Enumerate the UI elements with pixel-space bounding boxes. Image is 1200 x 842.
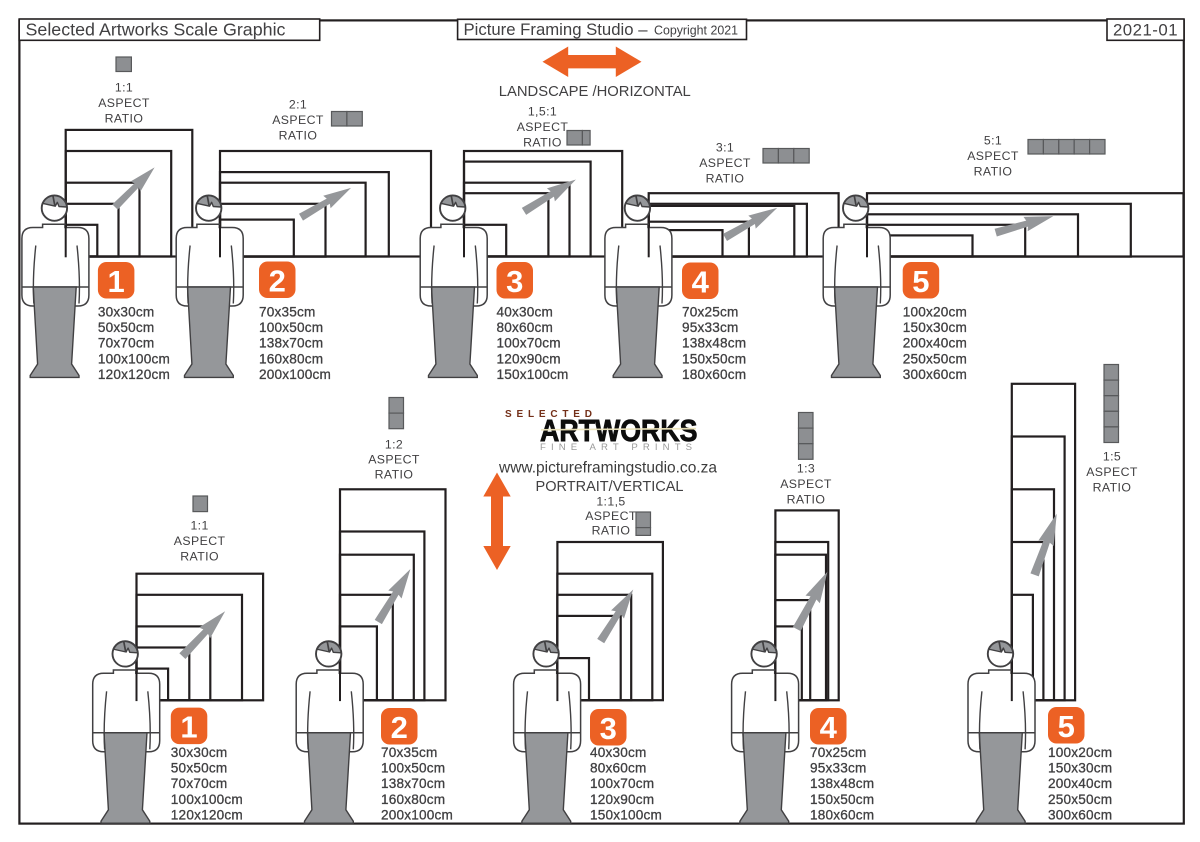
svg-text:5: 5 bbox=[912, 264, 929, 299]
svg-text:ASPECT: ASPECT bbox=[368, 453, 420, 467]
svg-text:300x60cm: 300x60cm bbox=[1048, 808, 1112, 823]
svg-text:200x40cm: 200x40cm bbox=[903, 336, 967, 351]
svg-text:2: 2 bbox=[269, 263, 286, 298]
svg-text:4: 4 bbox=[820, 710, 838, 745]
svg-text:100x50cm: 100x50cm bbox=[259, 320, 323, 335]
svg-text:70x70cm: 70x70cm bbox=[98, 336, 155, 351]
svg-text:70x70cm: 70x70cm bbox=[171, 776, 228, 791]
svg-text:RATIO: RATIO bbox=[787, 493, 826, 507]
svg-text:180x60cm: 180x60cm bbox=[810, 808, 874, 823]
svg-text:150x30cm: 150x30cm bbox=[1048, 761, 1112, 776]
svg-text:1:3: 1:3 bbox=[797, 462, 815, 476]
svg-text:100x70cm: 100x70cm bbox=[590, 776, 654, 791]
svg-text:RATIO: RATIO bbox=[375, 468, 414, 482]
svg-text:300x60cm: 300x60cm bbox=[903, 367, 967, 382]
svg-text:160x80cm: 160x80cm bbox=[381, 792, 445, 807]
svg-text:150x30cm: 150x30cm bbox=[903, 320, 967, 335]
svg-text:www.pictureframingstudio.co.za: www.pictureframingstudio.co.za bbox=[498, 460, 717, 477]
svg-text:1:1: 1:1 bbox=[190, 519, 208, 533]
svg-text:100x100cm: 100x100cm bbox=[98, 351, 170, 366]
svg-text:3: 3 bbox=[506, 264, 523, 299]
svg-text:200x100cm: 200x100cm bbox=[381, 808, 453, 823]
svg-text:95x33cm: 95x33cm bbox=[810, 761, 867, 776]
svg-text:RATIO: RATIO bbox=[105, 112, 144, 126]
svg-text:150x100cm: 150x100cm bbox=[590, 808, 662, 823]
svg-text:FINE ART PRINTS: FINE ART PRINTS bbox=[540, 442, 697, 453]
svg-text:250x50cm: 250x50cm bbox=[1048, 792, 1112, 807]
svg-text:200x100cm: 200x100cm bbox=[259, 367, 331, 382]
svg-text:100x70cm: 100x70cm bbox=[497, 336, 561, 351]
svg-text:ASPECT: ASPECT bbox=[1086, 465, 1138, 479]
svg-text:50x50cm: 50x50cm bbox=[98, 320, 155, 335]
svg-text:ASPECT: ASPECT bbox=[98, 96, 150, 110]
svg-text:70x25cm: 70x25cm bbox=[682, 304, 739, 319]
svg-text:RATIO: RATIO bbox=[1093, 481, 1132, 495]
svg-text:1:2: 1:2 bbox=[385, 438, 403, 452]
svg-text:RATIO: RATIO bbox=[523, 136, 562, 150]
svg-text:1: 1 bbox=[107, 264, 124, 299]
svg-text:4: 4 bbox=[692, 264, 710, 299]
svg-text:30x30cm: 30x30cm bbox=[171, 745, 228, 760]
svg-text:100x50cm: 100x50cm bbox=[381, 761, 445, 776]
svg-text:120x120cm: 120x120cm bbox=[98, 367, 170, 382]
svg-text:2: 2 bbox=[391, 710, 408, 745]
svg-text:RATIO: RATIO bbox=[592, 524, 631, 538]
svg-text:138x70cm: 138x70cm bbox=[259, 336, 323, 351]
svg-text:80x60cm: 80x60cm bbox=[590, 761, 647, 776]
svg-text:1:5: 1:5 bbox=[1103, 450, 1121, 464]
svg-text:70x35cm: 70x35cm bbox=[259, 304, 316, 319]
svg-text:120x90cm: 120x90cm bbox=[590, 792, 654, 807]
svg-text:250x50cm: 250x50cm bbox=[903, 351, 967, 366]
svg-text:100x20cm: 100x20cm bbox=[1048, 745, 1112, 760]
svg-text:160x80cm: 160x80cm bbox=[259, 351, 323, 366]
svg-text:2021-01: 2021-01 bbox=[1113, 21, 1178, 40]
svg-text:Copyright 2021: Copyright 2021 bbox=[654, 24, 738, 38]
svg-text:Picture Framing Studio –: Picture Framing Studio – bbox=[464, 20, 649, 39]
svg-text:ASPECT: ASPECT bbox=[585, 509, 637, 523]
svg-text:120x90cm: 120x90cm bbox=[497, 351, 561, 366]
svg-text:5:1: 5:1 bbox=[984, 134, 1002, 148]
svg-text:50x50cm: 50x50cm bbox=[171, 761, 228, 776]
svg-text:RATIO: RATIO bbox=[974, 165, 1013, 179]
svg-text:Selected Artworks Scale Graphi: Selected Artworks Scale Graphic bbox=[26, 20, 286, 40]
svg-text:LANDSCAPE /HORIZONTAL: LANDSCAPE /HORIZONTAL bbox=[499, 83, 691, 100]
svg-text:ASPECT: ASPECT bbox=[517, 120, 569, 134]
svg-text:RATIO: RATIO bbox=[180, 550, 219, 564]
svg-text:ASPECT: ASPECT bbox=[967, 149, 1019, 163]
svg-text:40x30cm: 40x30cm bbox=[497, 304, 554, 319]
svg-text:1: 1 bbox=[180, 709, 197, 744]
svg-text:138x48cm: 138x48cm bbox=[682, 336, 746, 351]
svg-text:2:1: 2:1 bbox=[289, 98, 307, 112]
svg-text:200x40cm: 200x40cm bbox=[1048, 776, 1112, 791]
svg-text:150x50cm: 150x50cm bbox=[682, 351, 746, 366]
svg-text:3: 3 bbox=[600, 711, 617, 746]
svg-text:1:1: 1:1 bbox=[115, 81, 133, 95]
svg-text:180x60cm: 180x60cm bbox=[682, 367, 746, 382]
svg-text:ASPECT: ASPECT bbox=[699, 156, 751, 170]
svg-text:5: 5 bbox=[1058, 709, 1075, 744]
svg-text:40x30cm: 40x30cm bbox=[590, 745, 647, 760]
svg-text:138x70cm: 138x70cm bbox=[381, 776, 445, 791]
svg-text:70x35cm: 70x35cm bbox=[381, 745, 438, 760]
svg-text:80x60cm: 80x60cm bbox=[497, 320, 554, 335]
svg-text:120x120cm: 120x120cm bbox=[171, 808, 243, 823]
svg-text:95x33cm: 95x33cm bbox=[682, 320, 739, 335]
svg-text:ASPECT: ASPECT bbox=[272, 113, 324, 127]
svg-text:30x30cm: 30x30cm bbox=[98, 304, 155, 319]
svg-text:1:1,5: 1:1,5 bbox=[596, 495, 625, 509]
svg-text:PORTRAIT/VERTICAL: PORTRAIT/VERTICAL bbox=[536, 478, 684, 495]
svg-text:150x50cm: 150x50cm bbox=[810, 792, 874, 807]
svg-text:70x25cm: 70x25cm bbox=[810, 745, 867, 760]
svg-text:ASPECT: ASPECT bbox=[174, 534, 226, 548]
svg-text:1,5:1: 1,5:1 bbox=[528, 105, 557, 119]
svg-text:3:1: 3:1 bbox=[716, 141, 734, 155]
svg-text:RATIO: RATIO bbox=[279, 129, 318, 143]
svg-text:100x100cm: 100x100cm bbox=[171, 792, 243, 807]
svg-text:138x48cm: 138x48cm bbox=[810, 776, 874, 791]
svg-text:ASPECT: ASPECT bbox=[780, 477, 832, 491]
svg-text:RATIO: RATIO bbox=[706, 172, 745, 186]
svg-text:150x100cm: 150x100cm bbox=[497, 367, 569, 382]
svg-text:100x20cm: 100x20cm bbox=[903, 304, 967, 319]
